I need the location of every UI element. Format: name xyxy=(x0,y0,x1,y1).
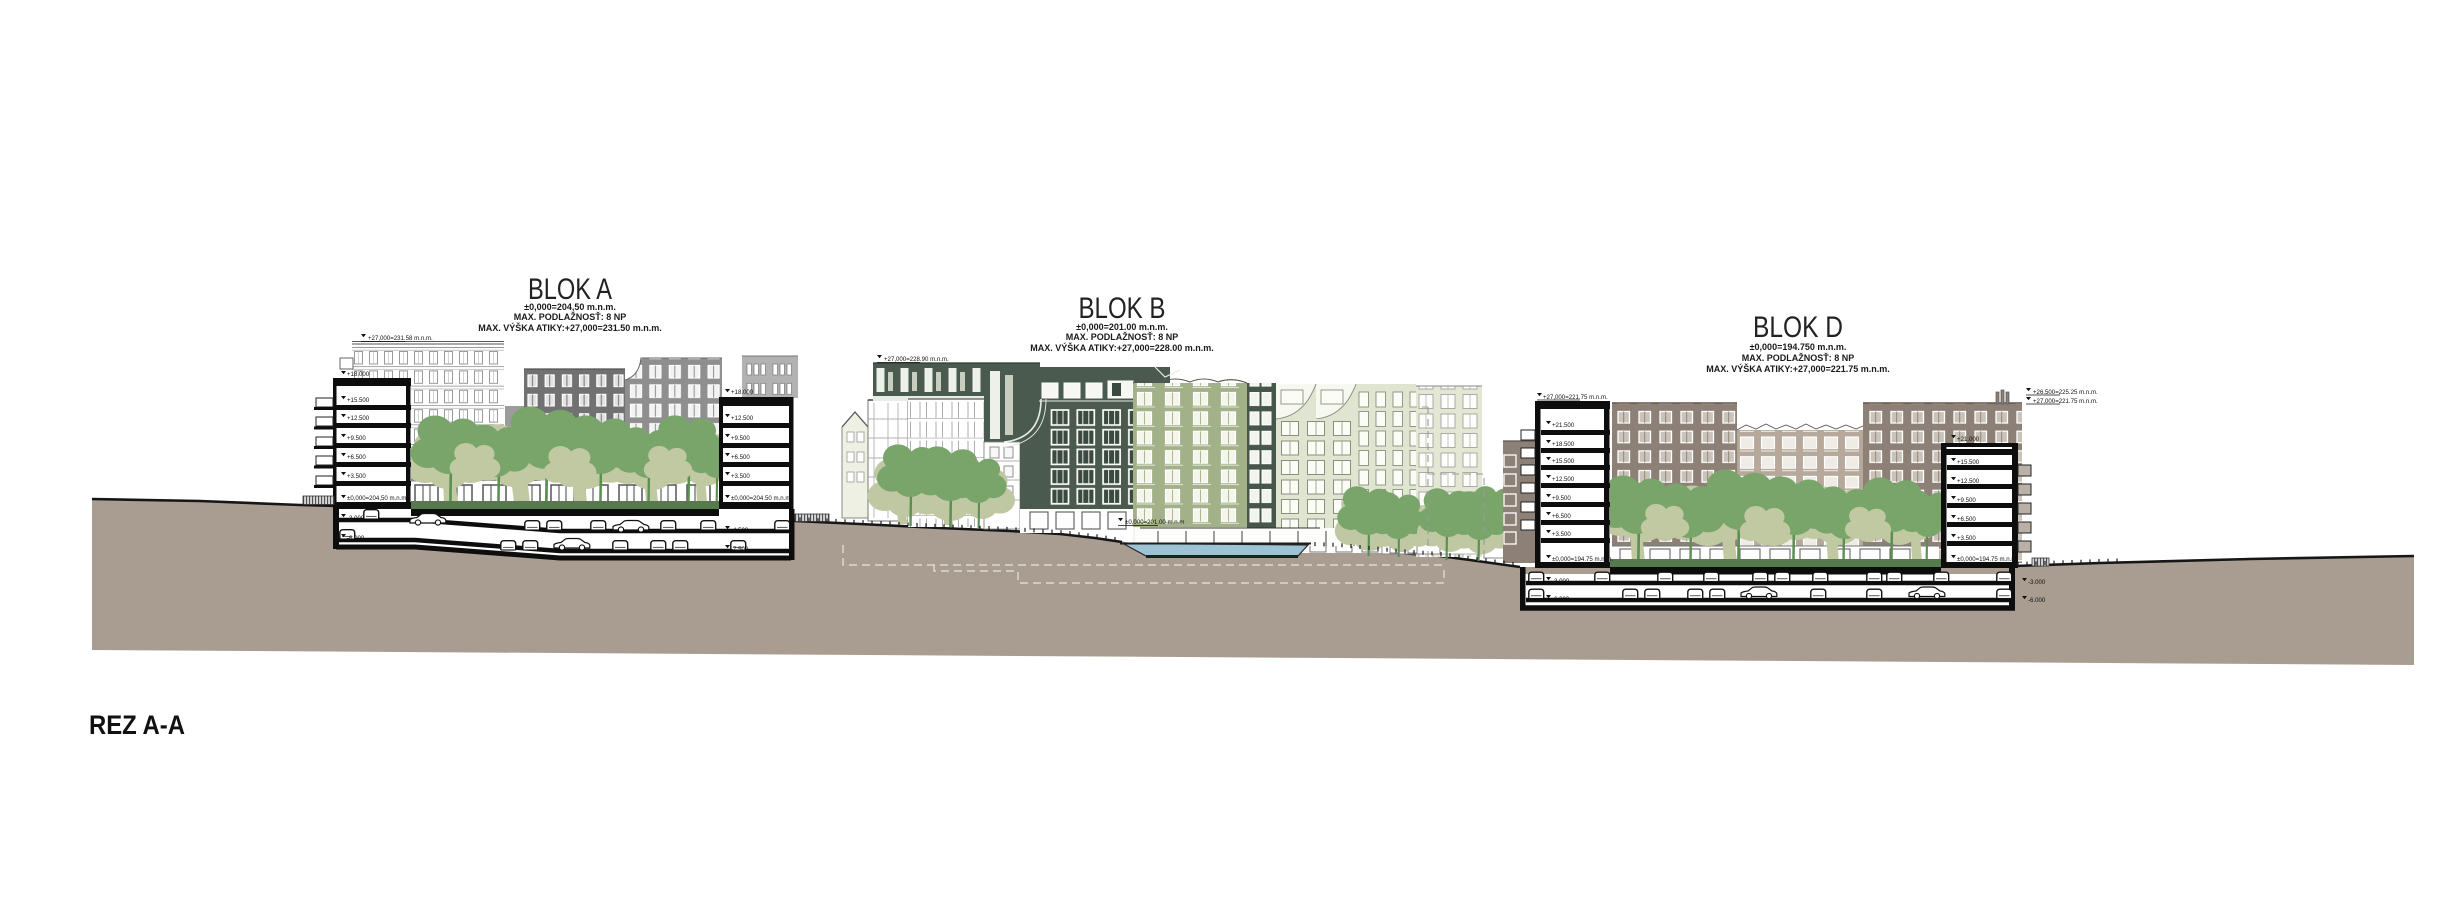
svg-text:-4.500: -4.500 xyxy=(731,527,749,534)
svg-text:+21.000: +21.000 xyxy=(1957,436,1980,443)
svg-text:±0,000=201.00 m.n.m.: ±0,000=201.00 m.n.m. xyxy=(1076,322,1168,332)
svg-text:-6.000: -6.000 xyxy=(347,535,365,542)
svg-text:±0,000=194.750 m.n.m.: ±0,000=194.750 m.n.m. xyxy=(1750,342,1847,352)
svg-text:+9.500: +9.500 xyxy=(1957,497,1976,504)
svg-text:BLOK D: BLOK D xyxy=(1753,311,1843,344)
svg-text:+9.500: +9.500 xyxy=(1552,495,1571,502)
svg-text:MAX. PODLAŽNOSŤ: 8 NP: MAX. PODLAŽNOSŤ: 8 NP xyxy=(1066,331,1179,342)
svg-text:+6.500: +6.500 xyxy=(731,454,750,461)
svg-text:-3.000: -3.000 xyxy=(2028,579,2046,586)
svg-text:±0,000=201.00 m.n.m: ±0,000=201.00 m.n.m xyxy=(1125,519,1184,526)
svg-text:+12.500: +12.500 xyxy=(731,415,754,422)
svg-text:+15.500: +15.500 xyxy=(1957,459,1980,466)
svg-text:+12.500: +12.500 xyxy=(1552,476,1575,483)
svg-text:+9.500: +9.500 xyxy=(731,435,750,442)
svg-text:+15.500: +15.500 xyxy=(347,397,370,404)
svg-text:+3.500: +3.500 xyxy=(731,473,750,480)
svg-text:+15.500: +15.500 xyxy=(1552,458,1575,465)
svg-text:+12.500: +12.500 xyxy=(347,415,370,422)
svg-text:BLOK B: BLOK B xyxy=(1079,292,1166,325)
svg-text:+6.500: +6.500 xyxy=(1957,516,1976,523)
svg-text:+21.500: +21.500 xyxy=(1552,422,1575,429)
svg-text:±0,000=204,50 m.n.m.: ±0,000=204,50 m.n.m. xyxy=(347,495,408,502)
svg-text:MAX. VÝŠKA ATIKY:+27,000=221.7: MAX. VÝŠKA ATIKY:+27,000=221.75 m.n.m. xyxy=(1706,363,1890,374)
svg-text:-7.500: -7.500 xyxy=(731,546,749,553)
svg-text:MAX. PODLAŽNOSŤ: 8 NP: MAX. PODLAŽNOSŤ: 8 NP xyxy=(1742,352,1855,363)
svg-text:+6.500: +6.500 xyxy=(347,454,366,461)
svg-text:+27,000=231.58 m.n.m.: +27,000=231.58 m.n.m. xyxy=(368,335,433,342)
svg-text:+18.000: +18.000 xyxy=(347,371,370,378)
svg-text:MAX. VÝŠKA ATIKY:+27,000=231.5: MAX. VÝŠKA ATIKY:+27,000=231.50 m.n.m. xyxy=(478,322,662,333)
svg-text:MAX. PODLAŽNOSŤ: 8 NP: MAX. PODLAŽNOSŤ: 8 NP xyxy=(514,311,627,322)
svg-text:REZ A-A: REZ A-A xyxy=(89,710,185,740)
svg-text:±0,000=194.75 m.n.m.: ±0,000=194.75 m.n.m. xyxy=(1957,556,2018,563)
svg-text:±0,000=204,50 m.n.m.: ±0,000=204,50 m.n.m. xyxy=(524,302,616,312)
svg-text:+3.500: +3.500 xyxy=(347,473,366,480)
svg-text:-6.000: -6.000 xyxy=(2028,597,2046,604)
svg-text:±0,000=194.75 m.n.m.: ±0,000=194.75 m.n.m. xyxy=(1552,556,1613,563)
svg-text:+9.500: +9.500 xyxy=(347,435,366,442)
svg-text:-6.000: -6.000 xyxy=(1552,596,1570,603)
svg-text:+3.500: +3.500 xyxy=(1552,531,1571,538)
svg-text:-3.000: -3.000 xyxy=(347,515,365,522)
svg-text:+3.500: +3.500 xyxy=(1957,535,1976,542)
svg-text:+18.500: +18.500 xyxy=(1552,441,1575,448)
svg-text:+27,000=228.90 m.n.m.: +27,000=228.90 m.n.m. xyxy=(884,356,949,363)
svg-text:MAX. VÝŠKA ATIKY:+27,000=228.0: MAX. VÝŠKA ATIKY:+27,000=228.00 m.n.m. xyxy=(1030,342,1214,353)
svg-text:+18.000: +18.000 xyxy=(731,389,754,396)
svg-text:-3.000: -3.000 xyxy=(1552,578,1570,585)
svg-text:+12.500: +12.500 xyxy=(1957,478,1980,485)
svg-text:+6.500: +6.500 xyxy=(1552,513,1571,520)
svg-text:±0,000=204.50 m.n.m.: ±0,000=204.50 m.n.m. xyxy=(731,495,792,502)
